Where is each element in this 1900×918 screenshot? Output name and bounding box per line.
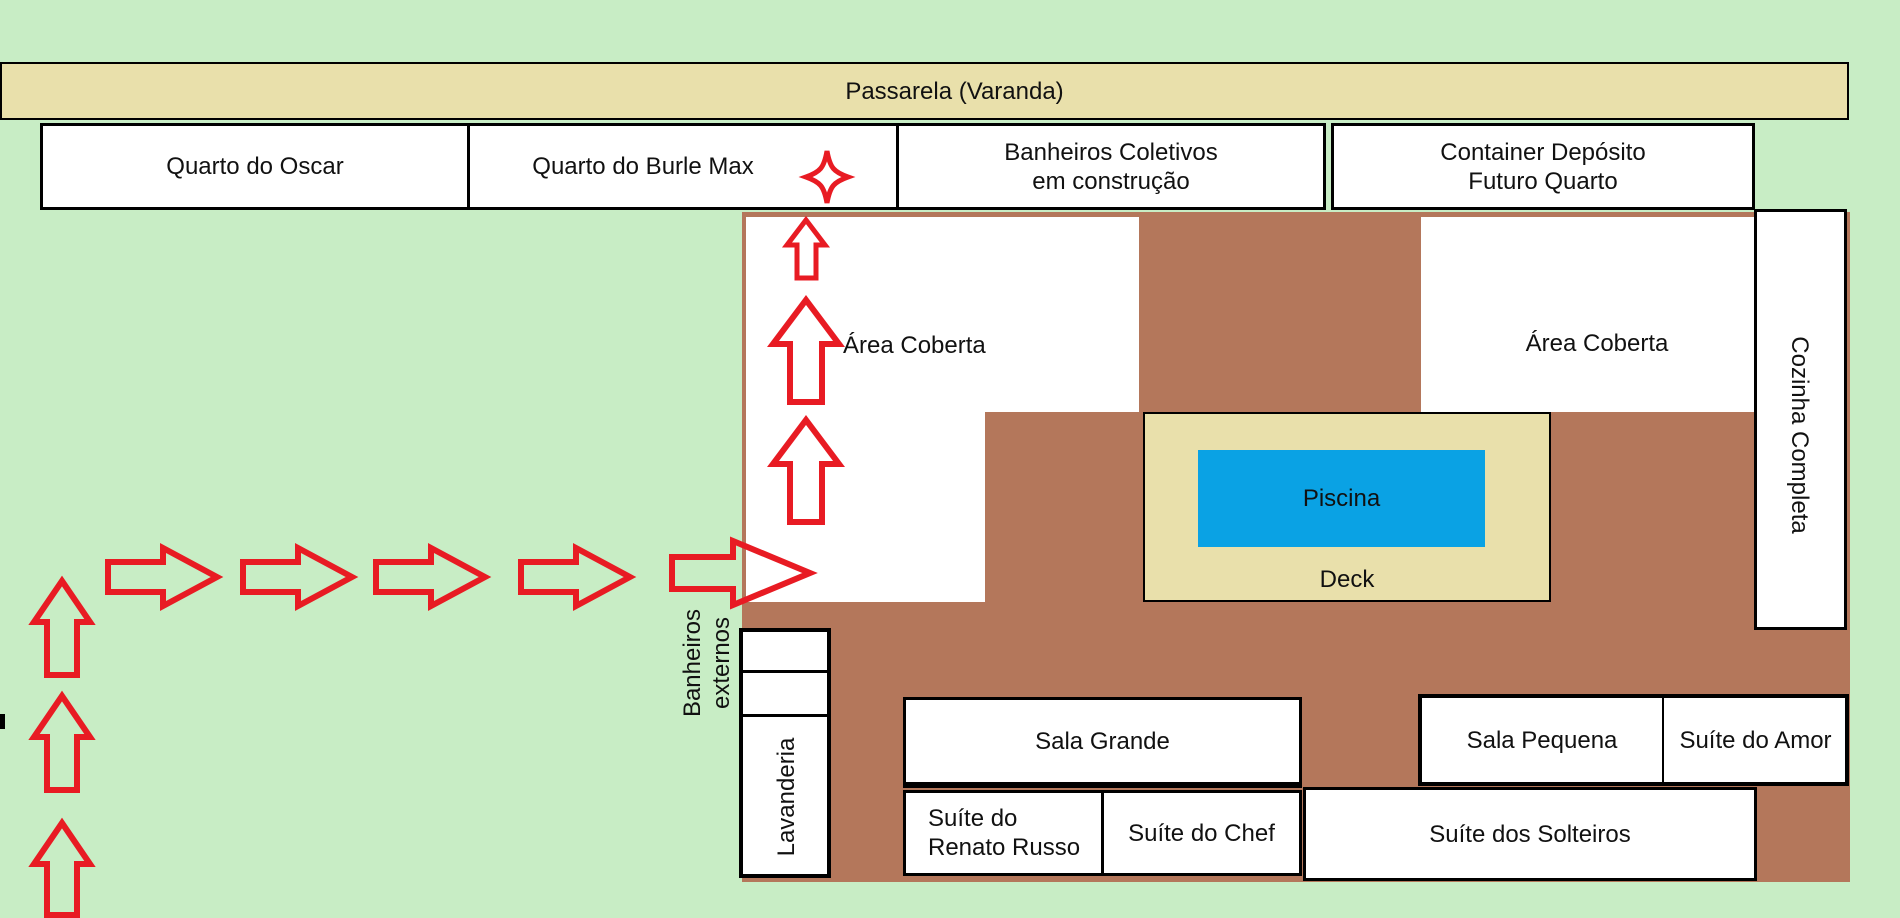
bathroom-divider-line-2	[741, 714, 829, 717]
suite-do-amor-label: Suíte do Amor	[1664, 725, 1847, 755]
route-arrow-right-icon	[376, 548, 485, 606]
banheiros-externos-label: Banheiros externos	[678, 598, 736, 728]
area-coberta-right-label: Área Coberta	[1497, 328, 1697, 358]
room-label-line2: Renato Russo	[928, 833, 1080, 862]
route-arrow-right-icon	[243, 548, 352, 606]
room-quarto-do-oscar: Quarto do Oscar	[40, 123, 470, 210]
room-quarto-do-burle-max: Quarto do Burle Max	[467, 123, 899, 210]
walkway-label: Passarela (Varanda)	[785, 77, 1063, 106]
room-suite-renato-russo: Suíte do Renato Russo	[903, 790, 1104, 876]
room-container-deposito: Container Depósito Futuro Quarto	[1331, 123, 1755, 210]
route-arrow-right-icon	[108, 548, 217, 606]
bathroom-divider-line-1	[741, 670, 829, 673]
walkway-passarela: Passarela (Varanda)	[0, 62, 1849, 120]
room-sala-grande: Sala Grande	[903, 697, 1302, 788]
room-label: Quarto do Oscar	[166, 152, 343, 181]
piscina-label: Piscina	[1303, 485, 1380, 513]
lavanderia-label: Lavanderia	[772, 727, 800, 867]
room-label-line2: em construção	[1032, 167, 1189, 196]
banheiros-externos-line1: Banheiros	[678, 609, 707, 717]
edge-artifact-mark	[0, 714, 5, 729]
area-coberta-left-upper	[746, 217, 1139, 412]
route-arrow-up-icon	[34, 696, 90, 790]
room-label-line1: Suíte do	[928, 804, 1017, 833]
route-arrow-right-icon	[521, 548, 630, 606]
floor-plan-canvas: Passarela (Varanda) Quarto do Oscar Quar…	[0, 0, 1900, 918]
room-label-line1: Banheiros Coletivos	[1004, 138, 1217, 167]
piscina-pool: Piscina	[1198, 450, 1485, 547]
room-suite-dos-solteiros: Suíte dos Solteiros	[1303, 787, 1757, 881]
room-label-line2: Futuro Quarto	[1468, 167, 1617, 196]
area-coberta-left-label: Área Coberta	[843, 330, 1053, 360]
cozinha-completa-label: Cozinha Completa	[1786, 325, 1814, 545]
area-coberta-left-lower	[746, 412, 985, 602]
deck-label: Deck	[1145, 565, 1549, 594]
route-arrow-up-icon	[34, 581, 90, 675]
room-banheiros-coletivos: Banheiros Coletivos em construção	[896, 123, 1326, 210]
room-suite-do-chef: Suíte do Chef	[1101, 790, 1302, 876]
banheiros-externos-line2: externos	[707, 617, 736, 709]
room-label-line1: Container Depósito	[1440, 138, 1645, 167]
sala-pequena-label: Sala Pequena	[1422, 725, 1662, 755]
area-coberta-right	[1421, 217, 1754, 412]
room-label: Quarto do Burle Max	[532, 152, 833, 181]
route-arrow-up-icon	[34, 823, 90, 915]
